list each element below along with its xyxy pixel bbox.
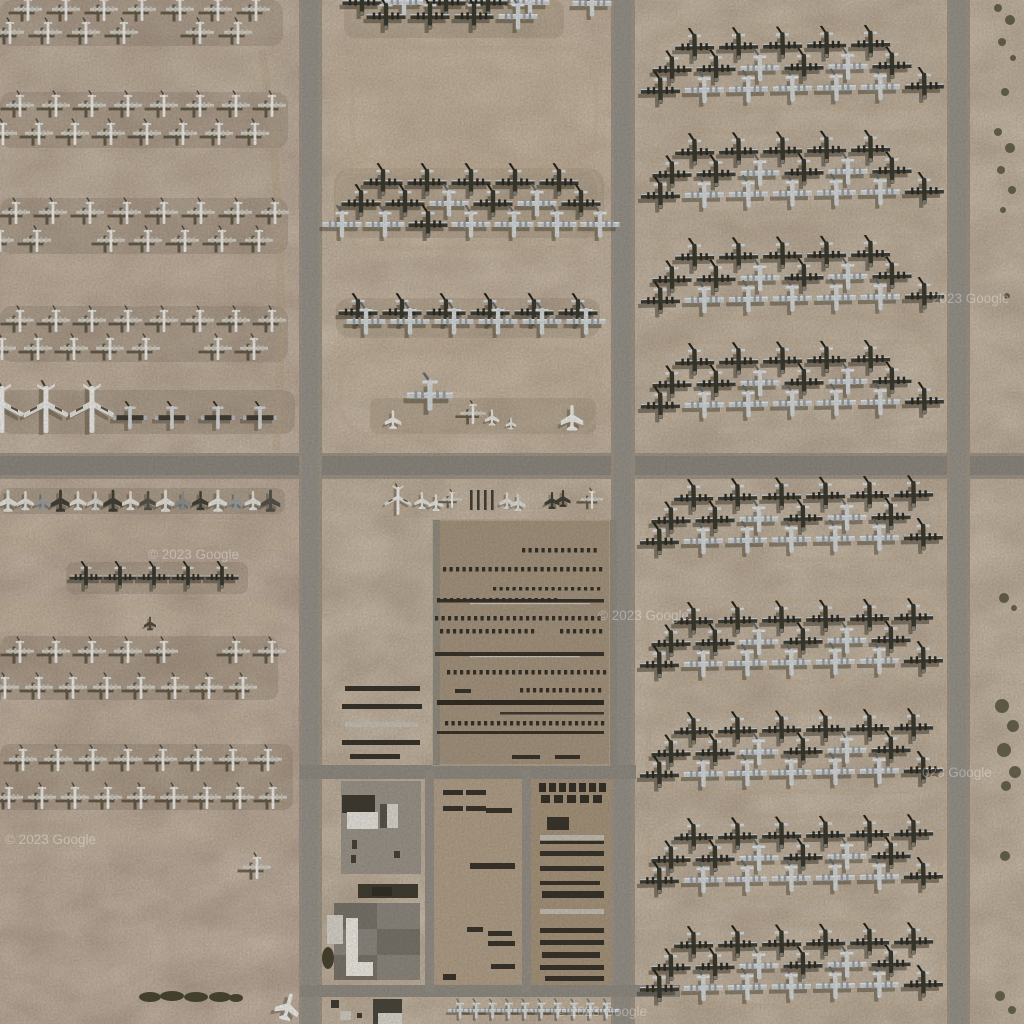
svg-text:2023 Google: 2023 Google	[932, 291, 1009, 306]
svg-text:© 2023 Google: © 2023 Google	[148, 547, 239, 562]
svg-text:© 2023 Google: © 2023 Google	[556, 1004, 647, 1019]
svg-text:023 Google: 023 Google	[922, 765, 992, 780]
svg-text:© 2023 Google: © 2023 Google	[598, 608, 689, 623]
svg-text:© 2023 Google: © 2023 Google	[5, 832, 96, 847]
